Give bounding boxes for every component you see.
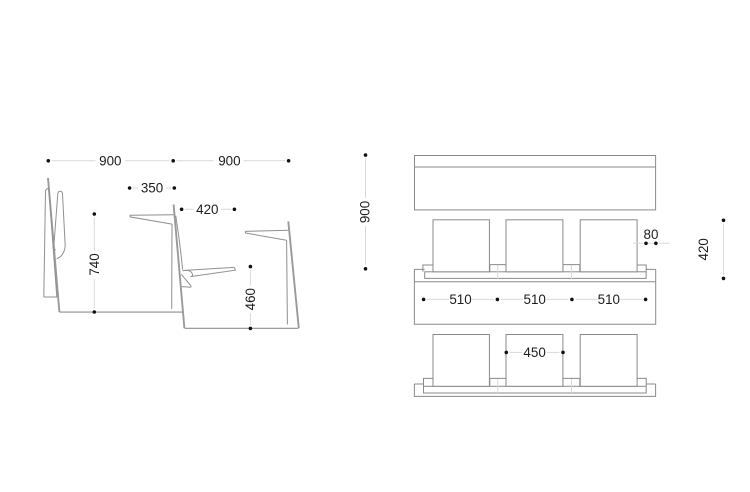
svg-text:350: 350	[141, 181, 163, 196]
svg-text:510: 510	[449, 292, 471, 307]
svg-text:900: 900	[99, 153, 121, 168]
svg-text:450: 450	[523, 345, 545, 360]
svg-text:510: 510	[598, 292, 620, 307]
svg-text:460: 460	[243, 288, 258, 310]
svg-text:80: 80	[644, 227, 659, 242]
svg-text:740: 740	[87, 253, 102, 275]
svg-text:510: 510	[524, 292, 546, 307]
svg-text:420: 420	[696, 238, 711, 260]
svg-text:900: 900	[218, 153, 240, 168]
svg-text:900: 900	[358, 201, 373, 223]
svg-text:420: 420	[196, 202, 218, 217]
